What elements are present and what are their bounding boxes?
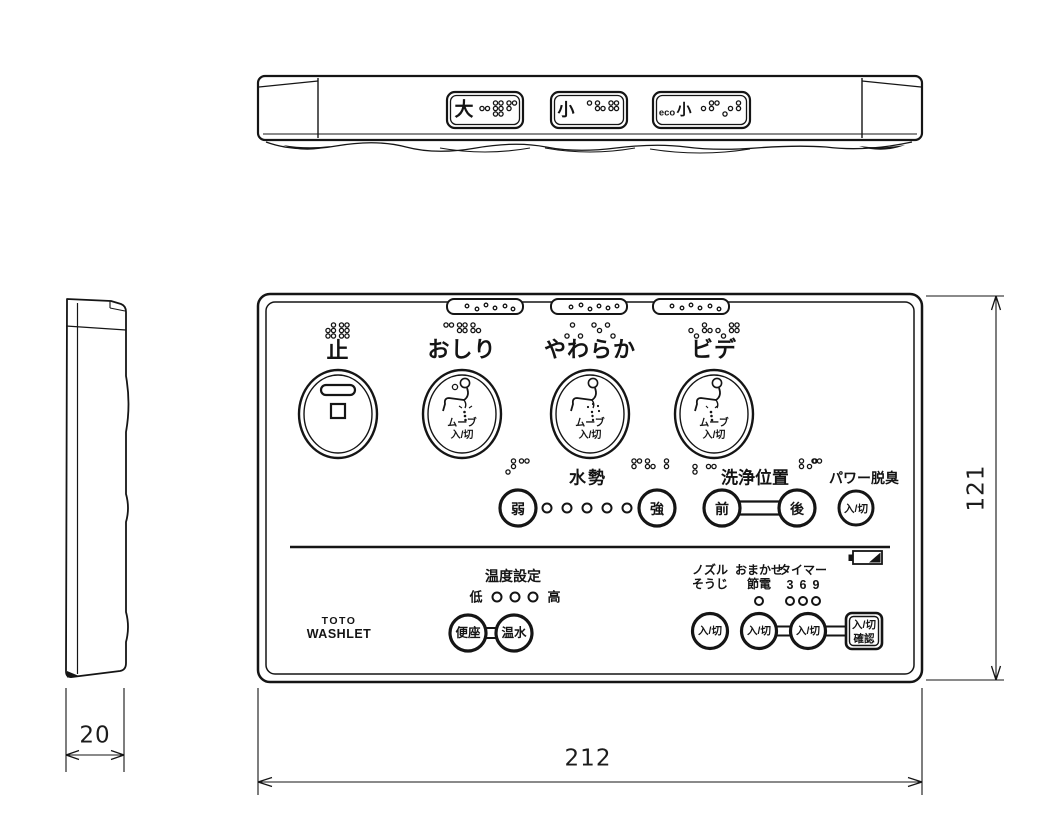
temp-low-label: 低	[469, 591, 482, 604]
bidet-move-label: ムーブ	[699, 419, 728, 429]
energy-save-control	[742, 597, 777, 649]
bidet-label: ビデ	[691, 339, 737, 361]
yawaraka-label: やわらか	[544, 339, 636, 361]
energy-save-label-2: 節電	[747, 578, 771, 590]
timer-9-label: 9	[813, 579, 820, 592]
bidet-button	[675, 370, 753, 458]
timer-6-label: 6	[800, 579, 807, 592]
top-slot	[551, 299, 627, 314]
timer-3-label: 3	[787, 579, 794, 592]
water-pressure-label: 水勢	[569, 470, 607, 487]
temperature-setting-label: 温度設定	[485, 569, 541, 583]
stop-square-icon	[331, 404, 345, 418]
yawaraka-onoff-label: 入/切	[579, 431, 602, 441]
temperature-indicator-dots	[493, 593, 538, 602]
yawaraka-button	[551, 370, 629, 458]
yawaraka-move-label: ムーブ	[575, 419, 604, 429]
dimension-width-value: 212	[565, 748, 612, 771]
temp-high-label: 高	[547, 591, 560, 604]
top-slot	[653, 299, 729, 314]
position-front-label: 前	[715, 502, 729, 516]
braille-dots	[632, 459, 669, 469]
dimension-depth-value: 20	[79, 725, 110, 748]
oshiri-label: おしり	[427, 339, 496, 361]
seated-person-icon	[695, 378, 722, 421]
flush-small-label: 小	[558, 102, 575, 119]
top-view	[258, 76, 922, 153]
oshiri-button	[423, 370, 501, 458]
stop-bar-icon	[321, 385, 355, 395]
braille-dots	[799, 459, 817, 469]
line-art	[0, 0, 1059, 821]
braille-dots	[689, 323, 739, 338]
water-pressure-control	[500, 490, 675, 526]
seated-person-icon	[443, 378, 472, 421]
timer-indicator-dots	[786, 597, 820, 605]
deodorizer-onoff-label: 入/切	[844, 504, 868, 515]
water-temp-label: 温水	[501, 627, 526, 640]
braille-dots	[565, 323, 615, 338]
seated-person-icon	[571, 378, 600, 421]
water-pressure-indicator-dots	[543, 504, 632, 513]
timer-onoff-label: 入/切	[796, 626, 820, 637]
oshiri-onoff-label: 入/切	[451, 431, 474, 441]
flush-large-label: 大	[454, 101, 473, 120]
temperature-control	[450, 593, 538, 652]
nozzle-onoff-label: 入/切	[698, 626, 722, 637]
dimension-height-value: 121	[966, 465, 989, 512]
braille-dots	[444, 323, 481, 333]
wash-position-label: 洗浄位置	[721, 470, 789, 487]
energy-save-onoff-label: 入/切	[747, 626, 771, 637]
stop-label: 止	[326, 340, 349, 362]
nozzle-label-1: ノズル	[692, 564, 728, 576]
nozzle-label-2: そうじ	[692, 578, 728, 590]
position-back-label: 後	[790, 502, 804, 516]
stop-button	[299, 370, 377, 458]
side-view	[66, 299, 129, 678]
oshiri-move-label: ムーブ	[447, 419, 476, 429]
dimension-width-212	[258, 688, 922, 795]
timer-control	[776, 597, 847, 649]
braille-dots	[693, 464, 716, 474]
flush-eco-small-label: 小	[676, 103, 691, 118]
bidet-onoff-label: 入/切	[703, 431, 726, 441]
braille-dots	[326, 323, 349, 338]
confirm-label: 確認	[854, 634, 875, 645]
deodorizer-label: パワー脱臭	[829, 471, 899, 485]
confirm-onoff-label: 入/切	[852, 620, 876, 631]
flush-eco-prefix-label: eco	[659, 108, 675, 118]
energy-save-label-1: おまかせ	[735, 564, 783, 576]
energy-save-indicator-dot	[755, 597, 763, 605]
seat-temp-label: 便座	[455, 627, 480, 640]
timer-label: タイマー	[779, 564, 827, 576]
battery-icon	[849, 551, 883, 564]
top-slot	[447, 299, 523, 314]
toto-washlet-remote-technical-drawing: 大 小 eco 小 止 おしり やわらか ビデ ムーブ 入/切 ムーブ 入/切 …	[0, 0, 1059, 821]
washlet-logo: WASHLET	[307, 628, 372, 641]
strong-label: 強	[650, 502, 664, 516]
weak-label: 弱	[511, 502, 525, 516]
toto-logo: TOTO	[322, 616, 357, 627]
braille-dots	[506, 459, 529, 474]
